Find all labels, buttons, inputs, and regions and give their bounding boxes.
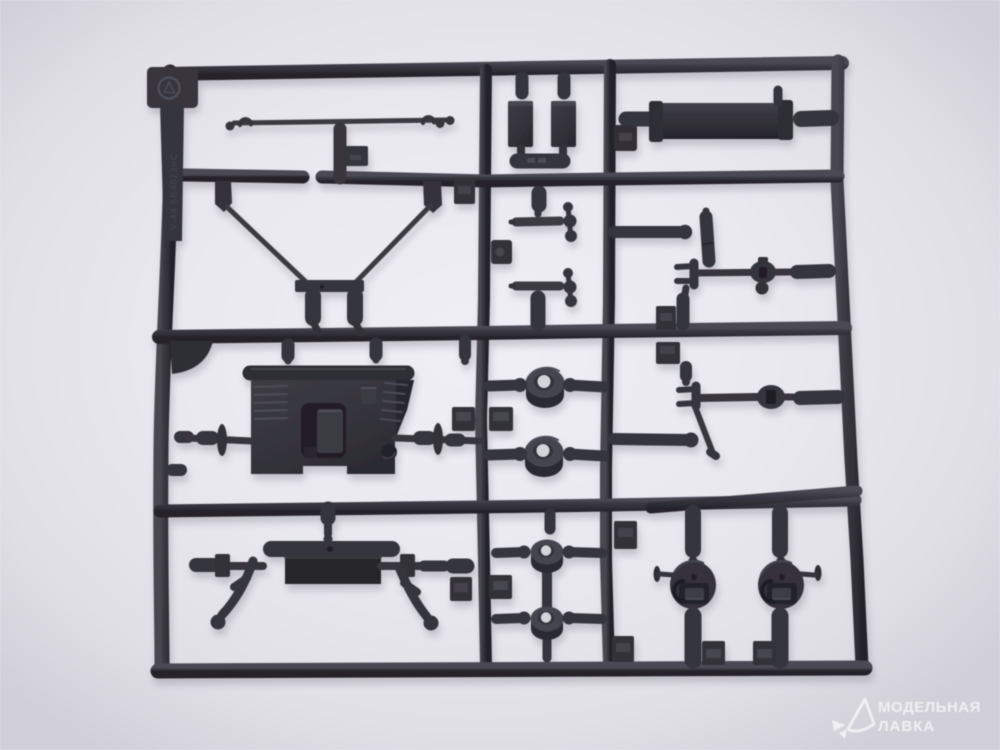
svg-text:МОДЕЛЬНАЯ: МОДЕЛЬНАЯ [878, 699, 981, 716]
svg-text:ЛАВКА: ЛАВКА [878, 718, 935, 735]
svg-text:V-44 5B4023nC: V-44 5B4023nC [169, 152, 179, 230]
